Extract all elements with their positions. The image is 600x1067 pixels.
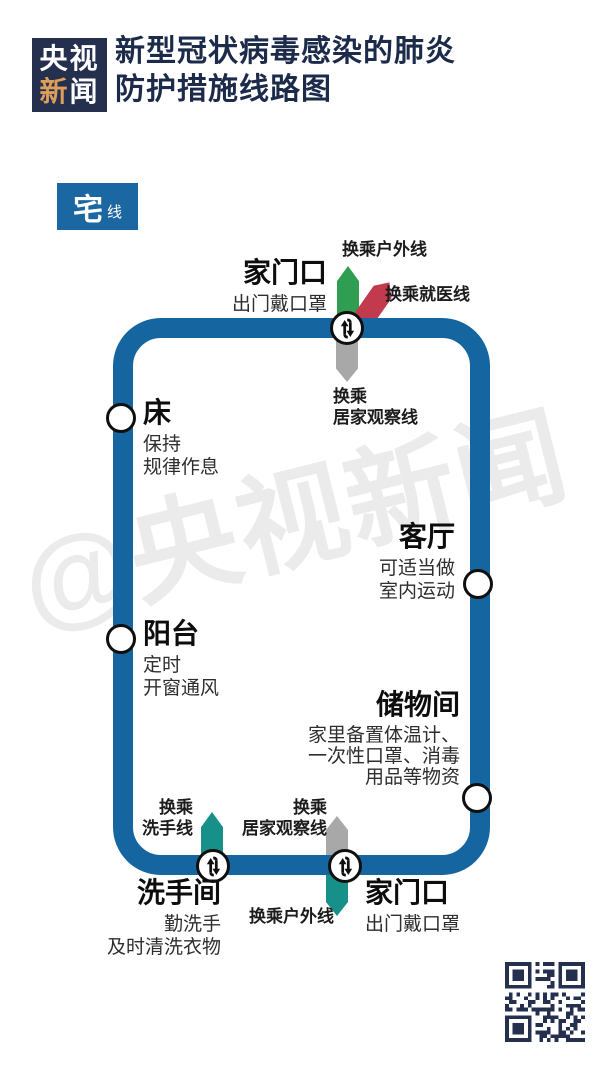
station-note: 可适当做 室内运动: [379, 557, 455, 603]
transfer-cycle-icon: [335, 316, 360, 341]
station-door-bottom: 家门口 出门戴口罩: [365, 878, 460, 936]
station-dot-storage: [462, 783, 492, 813]
label-transfer-outdoor-top: 换乘户外线: [342, 239, 427, 260]
qr-code: [505, 962, 585, 1042]
station-dot-balcony: [106, 624, 136, 654]
page-title: 新型冠状病毒感染的肺炎 防护措施线路图: [115, 33, 456, 109]
label-transfer-outdoor-bottom: 换乘户外线: [249, 906, 334, 927]
station-note: 出门戴口罩: [365, 913, 460, 936]
cctv-news-logo: 央视 新闻: [32, 38, 107, 112]
logo-line1: 央视: [39, 42, 99, 75]
title-line1: 新型冠状病毒感染的肺炎: [115, 33, 456, 71]
station-note: 勤洗手 及时清洗衣物: [107, 913, 221, 959]
label-transfer-observation-top: 换乘 居家观察线: [333, 386, 418, 428]
label-transfer-observation-bottom: 换乘 居家观察线: [242, 797, 327, 839]
station-storage: 储物间 家里备置体温计、 一次性口罩、消毒 用品等物资: [308, 690, 460, 788]
station-name: 储物间: [308, 690, 460, 720]
label-transfer-medical: 换乘就医线: [385, 284, 470, 305]
transfer-dot-door-top: [330, 311, 364, 345]
station-name: 家门口: [365, 878, 460, 908]
badge-suffix-char: 线: [107, 201, 122, 222]
station-dot-bed: [106, 403, 136, 433]
station-bathroom: 洗手间 勤洗手 及时清洗衣物: [107, 878, 221, 959]
station-name: 洗手间: [107, 878, 221, 908]
station-dot-living-room: [463, 569, 493, 599]
station-note: 出门戴口罩: [232, 293, 327, 316]
station-name: 客厅: [379, 522, 455, 552]
station-name: 阳台: [143, 619, 219, 649]
label-transfer-handwash: 换乘 洗手线: [142, 797, 193, 839]
transfer-cycle-icon: [201, 854, 226, 879]
station-bed: 床 保持 规律作息: [143, 398, 219, 479]
home-line-badge: 宅 线: [57, 183, 138, 230]
station-door-top: 家门口 出门戴口罩: [232, 258, 327, 316]
transfer-dot-door-bottom: [328, 849, 362, 883]
station-name: 床: [143, 398, 219, 428]
station-name: 家门口: [232, 258, 327, 288]
badge-main-char: 宅: [73, 185, 103, 229]
title-line2: 防护措施线路图: [115, 71, 456, 109]
station-note: 保持 规律作息: [143, 433, 219, 479]
transfer-cycle-icon: [333, 854, 358, 879]
infographic-canvas: @央视新闻 央视 新闻 新型冠状病毒感染的肺炎 防护措施线路图 宅 线: [0, 0, 600, 1067]
logo-line2: 新闻: [39, 75, 99, 108]
station-note: 家里备置体温计、 一次性口罩、消毒 用品等物资: [308, 725, 460, 788]
station-note: 定时 开窗通风: [143, 654, 219, 700]
station-living-room: 客厅 可适当做 室内运动: [379, 522, 455, 603]
station-balcony: 阳台 定时 开窗通风: [143, 619, 219, 700]
